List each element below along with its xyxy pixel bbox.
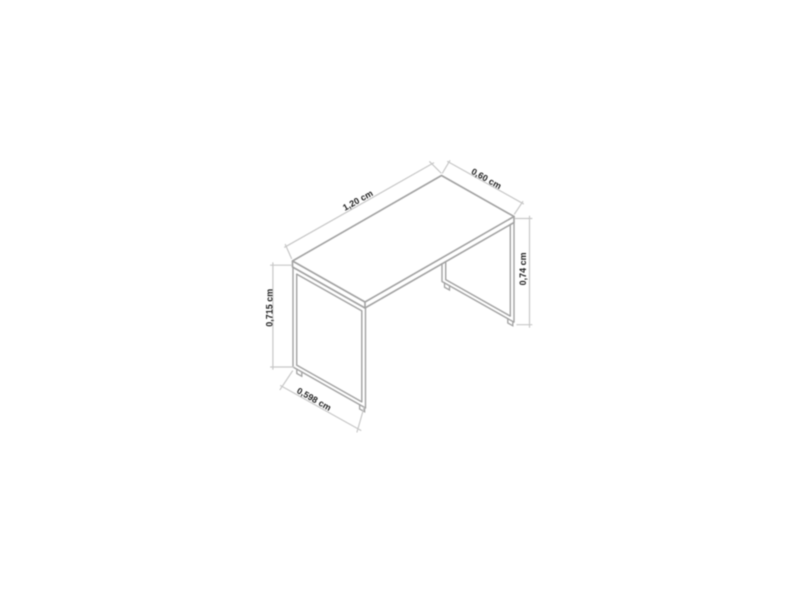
svg-text:0,74 cm: 0,74 cm [518,252,528,285]
svg-text:0,715 cm: 0,715 cm [265,289,275,327]
